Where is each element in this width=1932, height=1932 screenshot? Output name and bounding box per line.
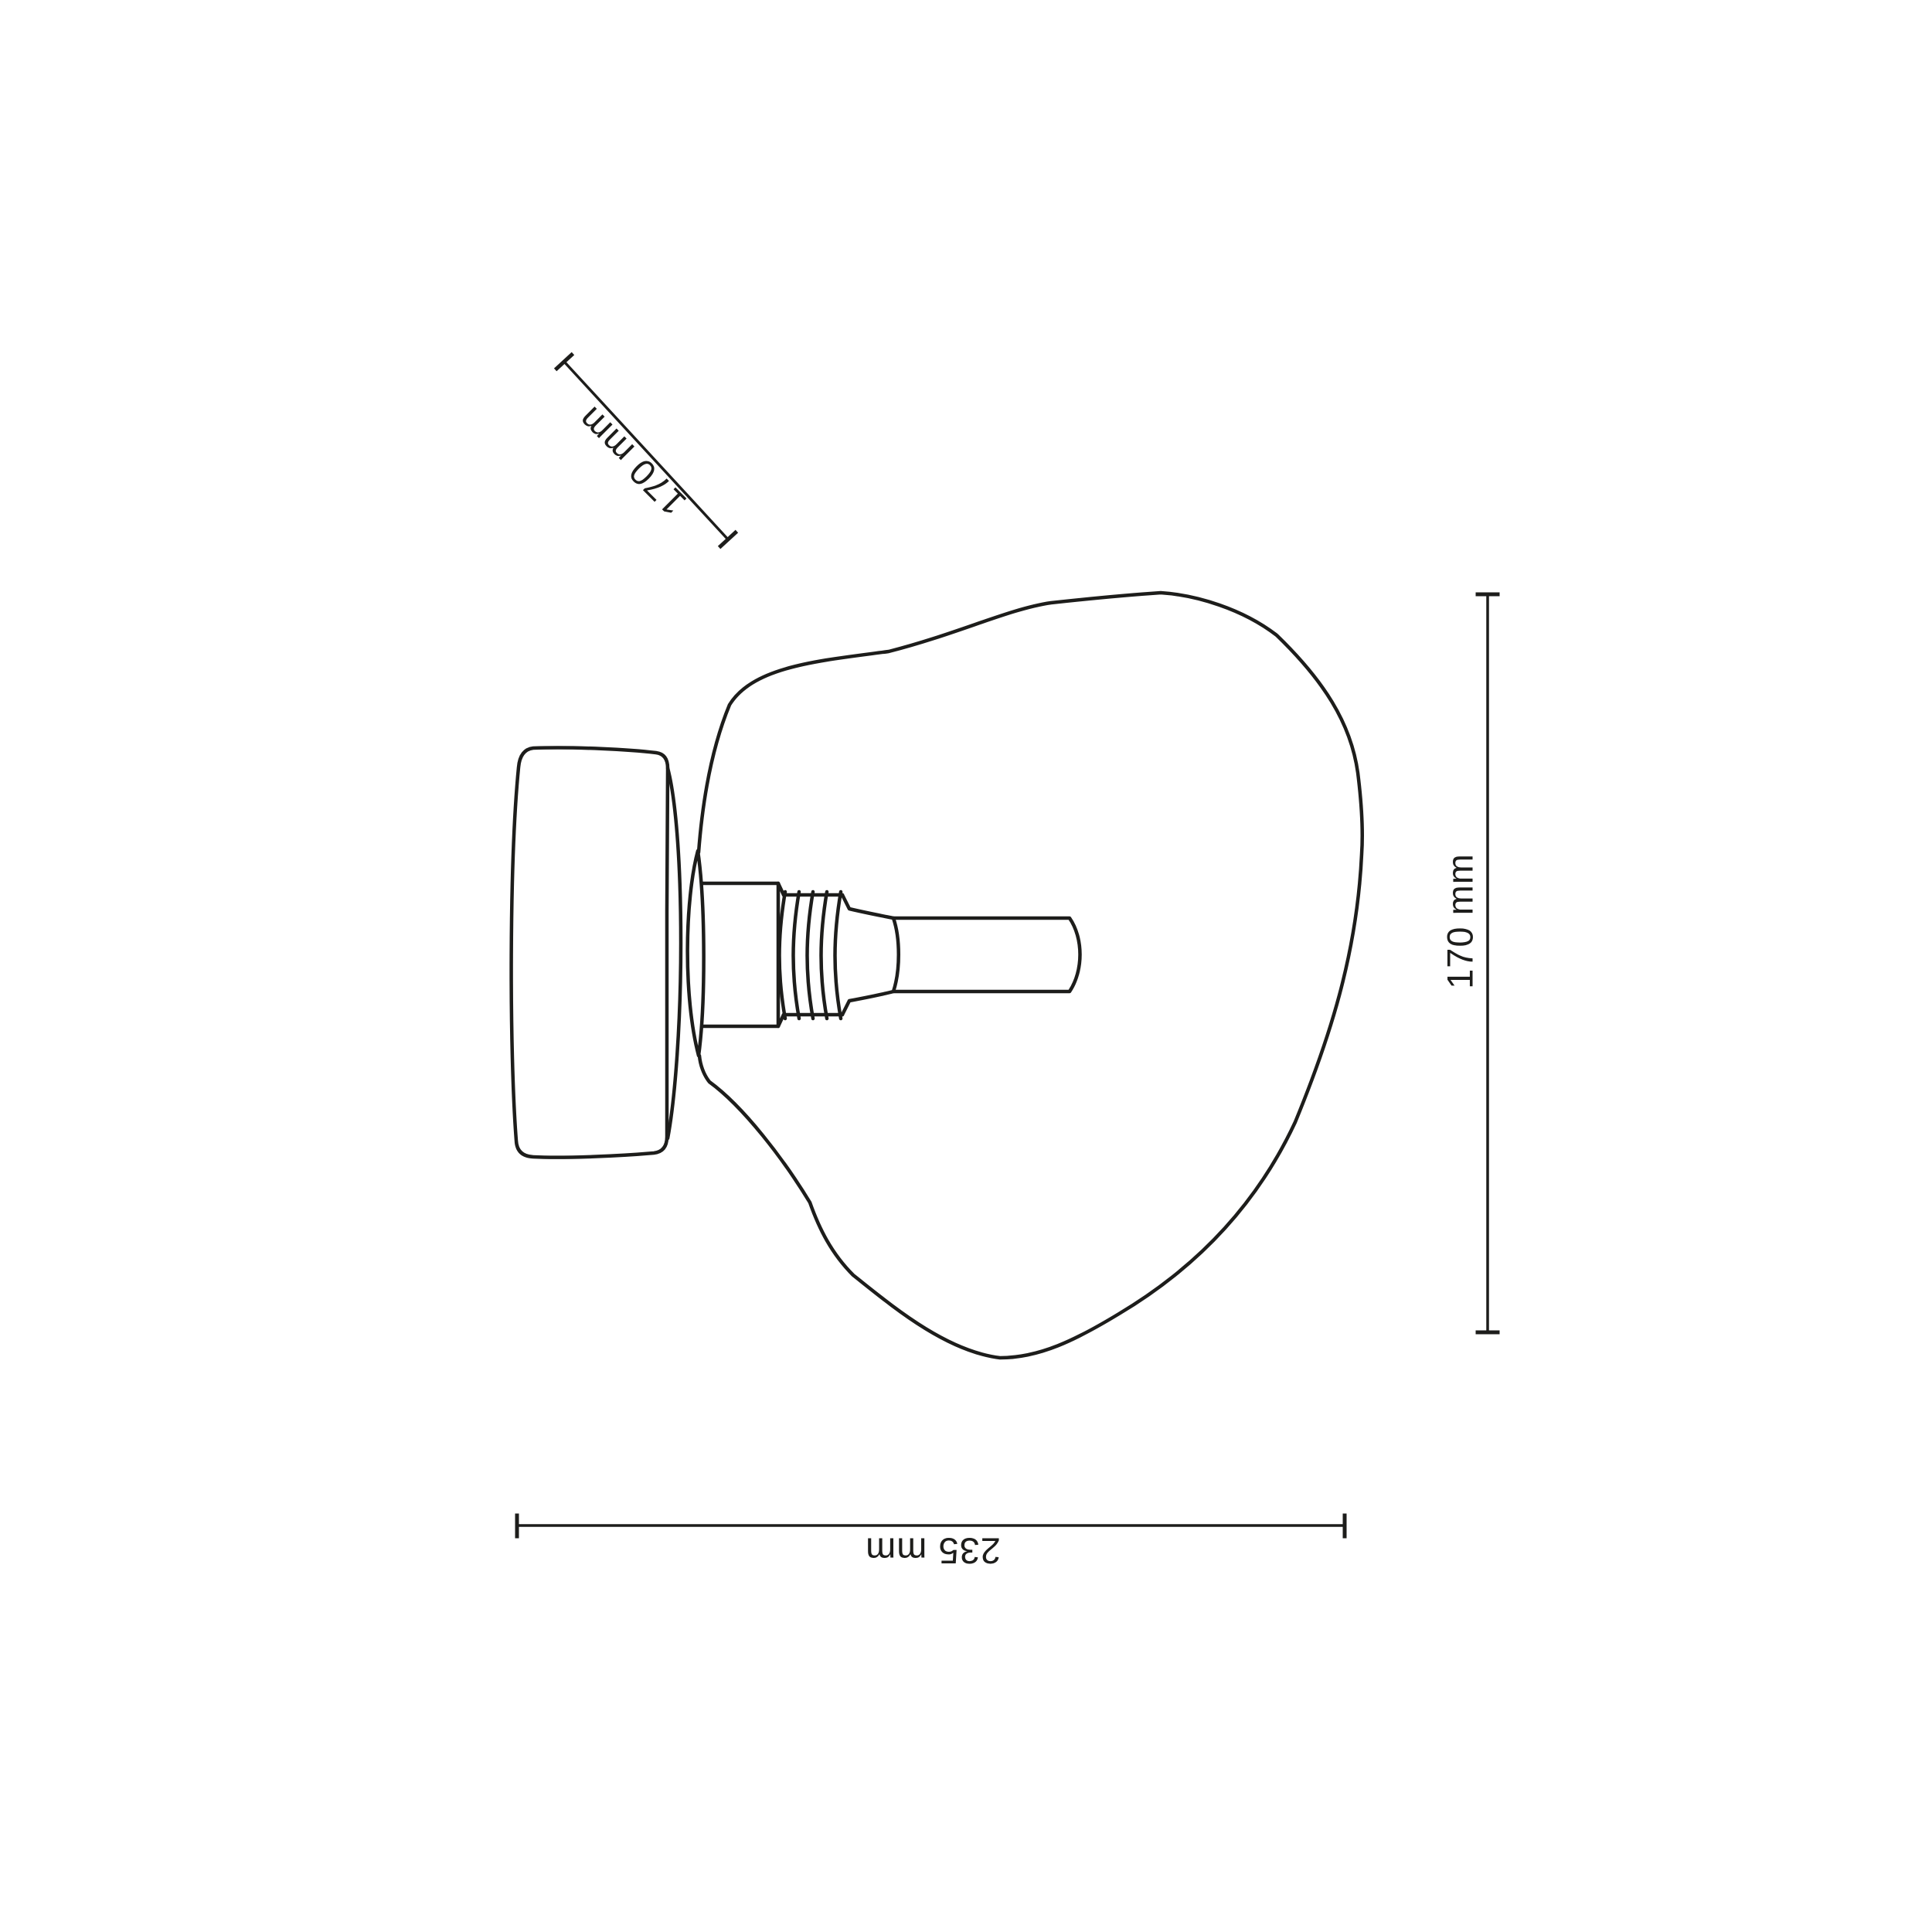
wall-mount-rim <box>668 768 681 1138</box>
thread-arc <box>821 892 828 1019</box>
thread-arc <box>780 892 786 1019</box>
socket-nose <box>842 895 899 1015</box>
glass-shade-outline <box>699 593 1362 1358</box>
dimension-width: 235 mm <box>517 1515 1345 1572</box>
socket-body <box>694 883 778 1026</box>
thread-arc <box>835 892 842 1019</box>
dimension-height-label: 170 mm <box>1440 853 1481 989</box>
thread-arc <box>794 892 800 1019</box>
socket-threads <box>778 883 842 1026</box>
bulb-tube <box>893 918 1080 992</box>
mounting-lens <box>688 851 704 1056</box>
lamp-dimension-diagram: 170 mm 170 mm 235 mm <box>0 0 1932 1932</box>
dimension-drawing-page: 170 mm 170 mm 235 mm <box>0 0 1932 1932</box>
dimension-depth: 170 mm <box>556 355 735 546</box>
wall-mount-face <box>512 747 668 1157</box>
thread-arc <box>808 892 814 1019</box>
dimension-depth-label: 170 mm <box>569 399 694 524</box>
dimension-height: 170 mm <box>1440 594 1498 1332</box>
dimension-width-label: 235 mm <box>865 1531 1001 1572</box>
wall-mount <box>512 747 681 1157</box>
